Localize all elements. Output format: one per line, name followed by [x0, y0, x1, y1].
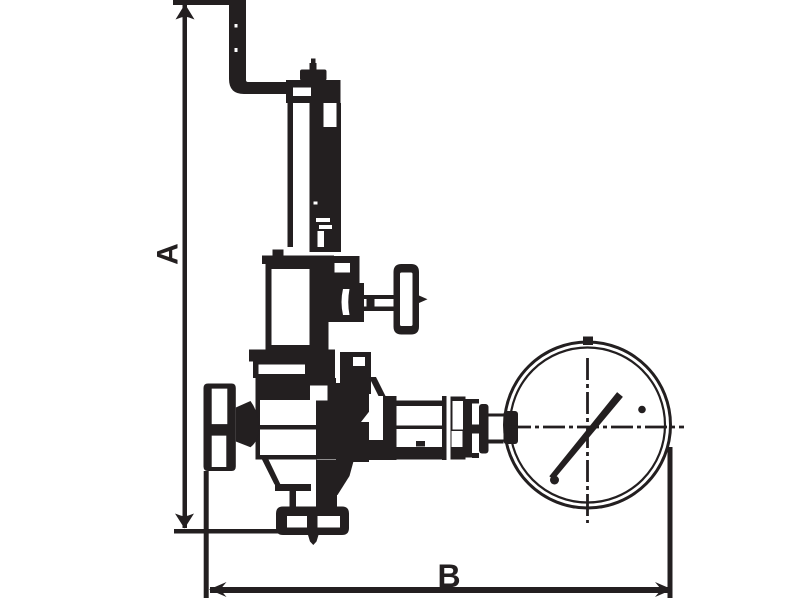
svg-text:B: B [437, 558, 460, 594]
svg-text:A: A [152, 243, 185, 265]
